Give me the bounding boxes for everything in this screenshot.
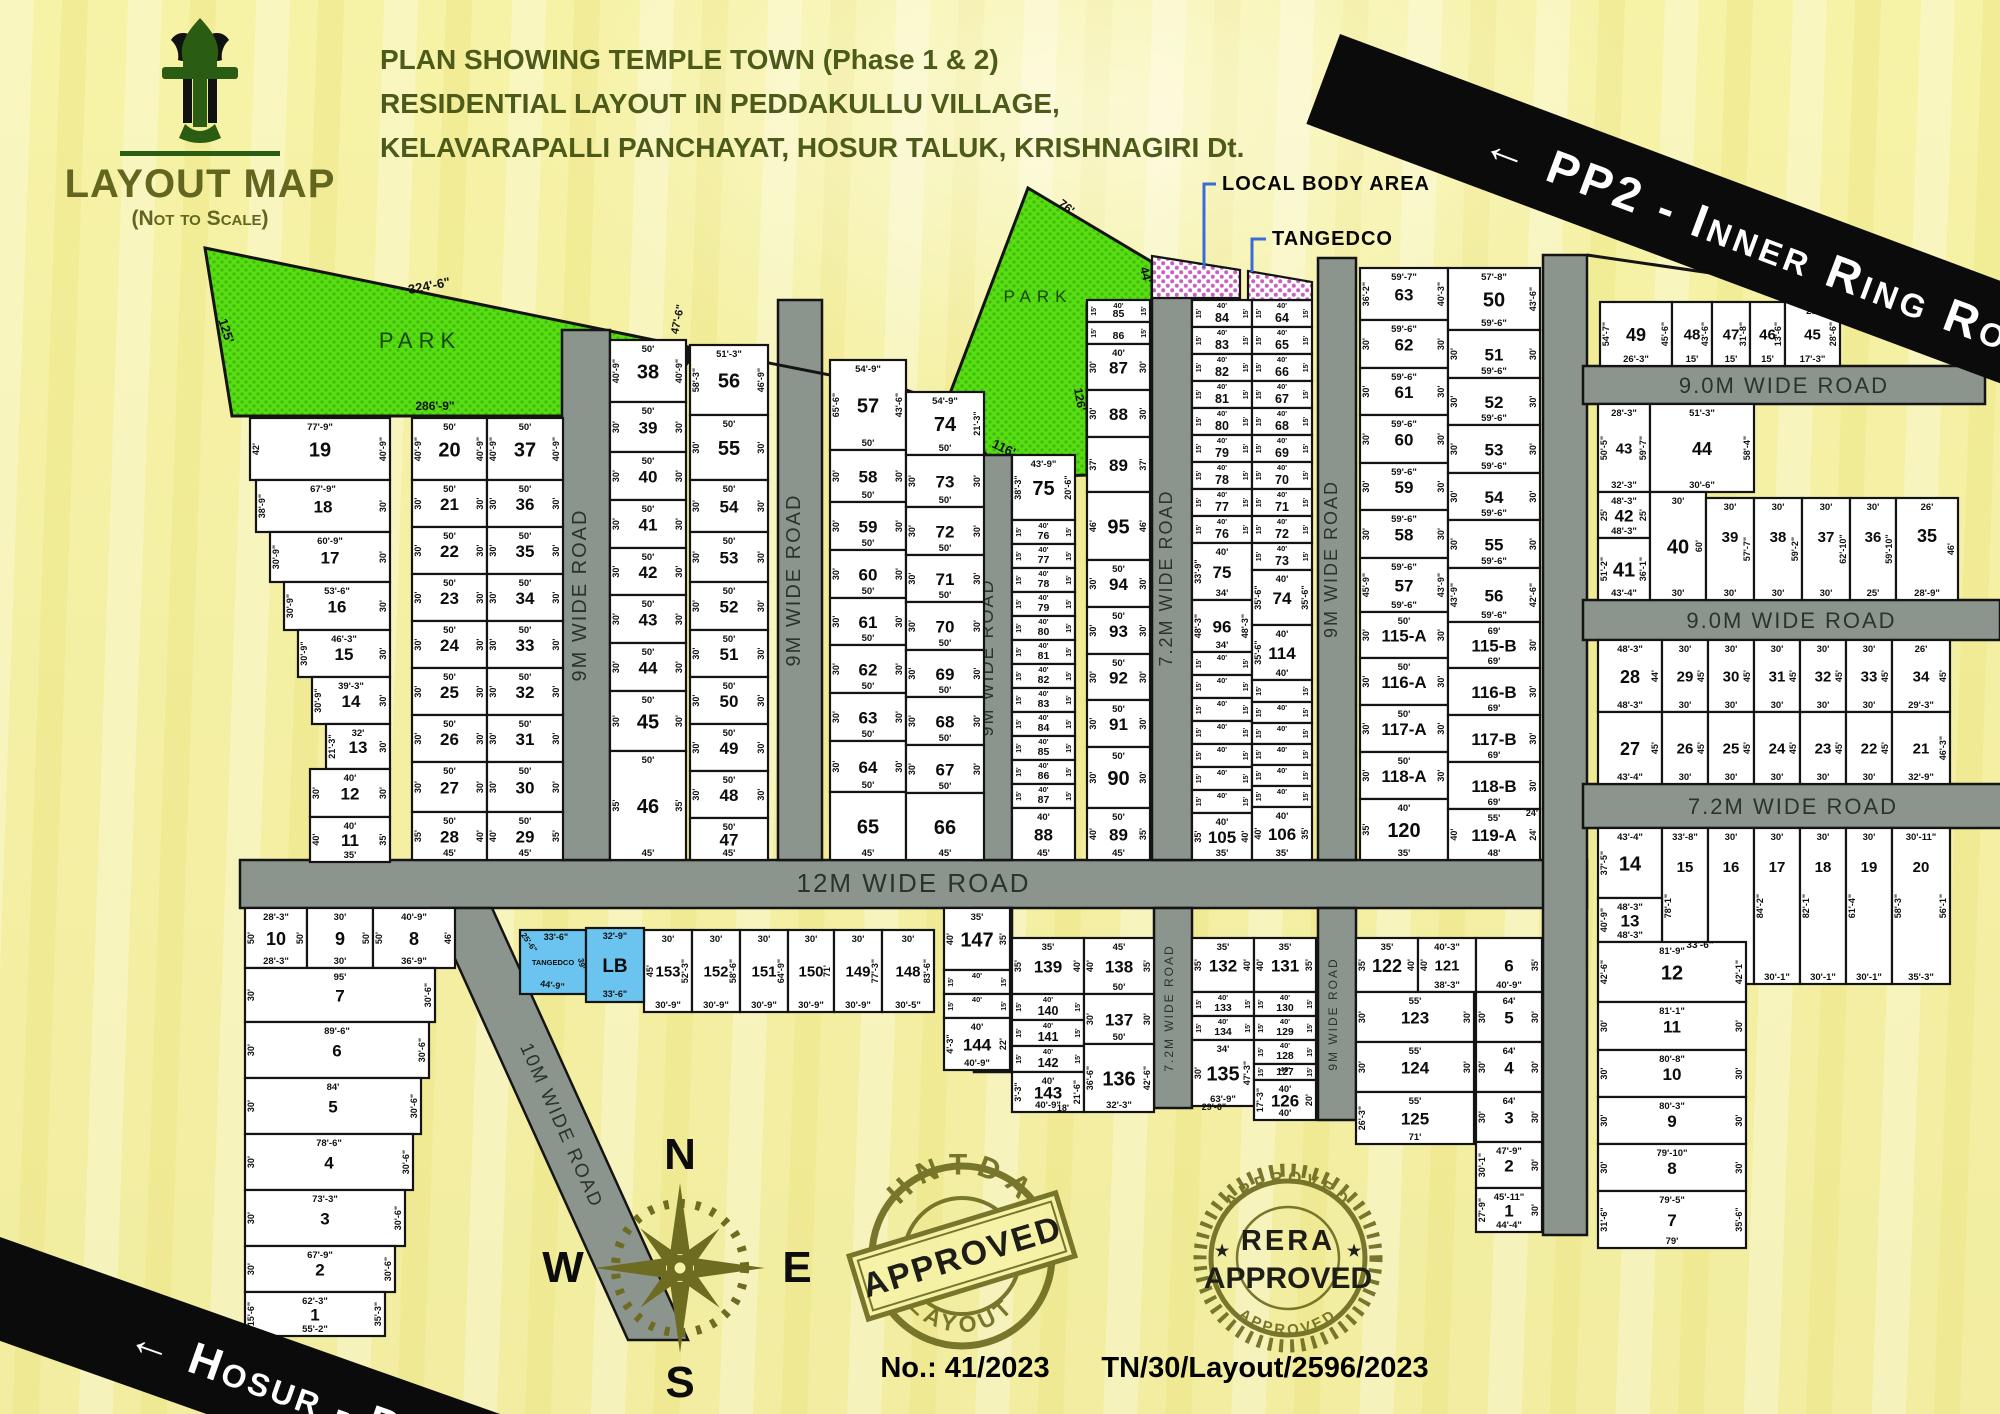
svg-text:38'-3": 38'-3" xyxy=(1434,980,1460,991)
svg-text:40': 40' xyxy=(1277,517,1287,526)
svg-text:15': 15' xyxy=(1243,796,1250,806)
svg-text:12: 12 xyxy=(1661,963,1683,985)
svg-text:45': 45' xyxy=(1834,670,1844,682)
svg-text:15': 15' xyxy=(1196,362,1203,372)
svg-text:30': 30' xyxy=(972,715,982,727)
plot-col-64-106-68: 40'15'15'68 xyxy=(1252,408,1312,435)
svg-text:35': 35' xyxy=(1279,942,1292,953)
svg-text:30': 30' xyxy=(1817,700,1830,711)
svg-text:30': 30' xyxy=(1436,385,1446,397)
svg-text:40': 40' xyxy=(1216,547,1229,558)
svg-text:15': 15' xyxy=(1196,443,1203,453)
svg-text:40': 40' xyxy=(945,933,955,945)
svg-text:37'-5": 37'-5" xyxy=(1599,851,1609,875)
svg-text:40'-9": 40'-9" xyxy=(413,437,423,461)
svg-text:36'-1": 36'-1" xyxy=(1638,557,1648,581)
svg-text:15': 15' xyxy=(1016,599,1023,609)
svg-text:79': 79' xyxy=(1666,1236,1679,1247)
svg-text:30': 30' xyxy=(1771,700,1784,711)
svg-text:59'-7": 59'-7" xyxy=(1638,436,1648,460)
svg-text:30': 30' xyxy=(551,591,561,603)
plot-col-147-144-147: 35'40'35'147 xyxy=(944,908,1010,970)
plot-row-15-20-20: 30'-11"35'-3"58'-3"56'-1"20 xyxy=(1892,828,1950,984)
svg-text:30': 30' xyxy=(1088,717,1098,729)
svg-text:64'-9": 64'-9" xyxy=(776,959,786,983)
svg-text:15': 15' xyxy=(1243,308,1250,318)
plot-col-84-105-96: 34'48'-3"48'-3"96 xyxy=(1192,600,1252,652)
svg-text:30': 30' xyxy=(1449,348,1459,360)
plot-block-row-49-45: 26'-3"54'-7"45'-6"4915'43'-6"4815'31'-8"… xyxy=(1600,302,1840,366)
svg-text:55': 55' xyxy=(1409,1046,1422,1057)
approval-number: No.: 41/2023 xyxy=(840,1352,1090,1385)
svg-text:24: 24 xyxy=(1769,741,1786,758)
svg-text:15': 15' xyxy=(1016,1002,1023,1012)
svg-text:43'-6": 43'-6" xyxy=(1700,322,1710,346)
svg-text:87: 87 xyxy=(1038,794,1050,806)
svg-text:130: 130 xyxy=(1276,1002,1294,1014)
plot-blk-40-40: 30'30'60'40 xyxy=(1650,492,1706,600)
svg-text:30': 30' xyxy=(1528,395,1538,407)
svg-text:65: 65 xyxy=(1275,338,1289,352)
svg-text:75: 75 xyxy=(1213,563,1232,582)
svg-text:30: 30 xyxy=(1723,669,1740,686)
svg-text:15': 15' xyxy=(1196,308,1203,318)
plot-col-50-119A-51: 59'-6"30'30'51 xyxy=(1448,330,1540,378)
plot-col-12-7-12: 81'-9"42'-6"42'-1"12 xyxy=(1598,942,1746,1002)
svg-text:30': 30' xyxy=(1679,772,1692,783)
svg-text:30'-9": 30'-9" xyxy=(703,1000,729,1011)
svg-text:106: 106 xyxy=(1268,825,1296,844)
plot-col-29-37-33: 50'30'30'33 xyxy=(487,621,563,668)
svg-text:127: 127 xyxy=(1276,1066,1294,1078)
svg-text:40': 40' xyxy=(1217,653,1227,662)
svg-text:30': 30' xyxy=(894,520,904,532)
svg-text:40': 40' xyxy=(1276,811,1289,822)
svg-text:30': 30' xyxy=(756,741,766,753)
svg-text:42'-6": 42'-6" xyxy=(1528,583,1538,607)
svg-text:30': 30' xyxy=(1361,629,1371,641)
plot-block-col-131-126: 35'40'35'13140'15'15'13040'15'15'12940'1… xyxy=(1254,938,1316,1120)
svg-text:30': 30' xyxy=(1530,1111,1540,1123)
plot-block-row-39-35: 30'30'57'-7"3930'30'59'-2"3830'30'62'-10… xyxy=(1706,498,1958,600)
svg-text:20'-6": 20'-6" xyxy=(1063,475,1073,499)
plot-row-153-148-148: 30'30'-5"83'-6"148 xyxy=(882,930,934,1012)
svg-text:30': 30' xyxy=(1771,832,1784,843)
plot-col-63-120-60: 59'-6"30'30'60 xyxy=(1360,415,1448,463)
svg-text:45': 45' xyxy=(723,848,736,859)
blue-plot-LB: LB32'-9"33'-6" xyxy=(586,928,644,1002)
svg-text:58'-3": 58'-3" xyxy=(1893,894,1903,918)
svg-text:22: 22 xyxy=(1861,741,1878,758)
svg-text:38: 38 xyxy=(1770,529,1787,546)
svg-text:50': 50' xyxy=(443,816,456,827)
plot-col-47-56-49: 50'30'30'49 xyxy=(690,724,768,771)
svg-text:65: 65 xyxy=(857,817,879,839)
svg-text:86: 86 xyxy=(1113,330,1125,342)
plot-col-57-65-62: 50'30'30'62 xyxy=(830,645,906,693)
svg-text:34': 34' xyxy=(1217,1044,1230,1055)
plot-col-63-120-63: 59'-7"36'-2"40'-3"63 xyxy=(1360,268,1448,320)
svg-text:53: 53 xyxy=(720,548,739,567)
svg-text:15': 15' xyxy=(1307,1023,1314,1033)
svg-text:15': 15' xyxy=(1016,695,1023,705)
plot-col-11-19-19: 77'-9"42'40'-9"19 xyxy=(250,418,390,480)
svg-text:50': 50' xyxy=(1113,1032,1126,1043)
svg-text:15': 15' xyxy=(1016,527,1023,537)
svg-text:47: 47 xyxy=(1723,327,1740,344)
plot-col-84-105-76: 40'15'15'76 xyxy=(1192,516,1252,543)
svg-text:30': 30' xyxy=(413,591,423,603)
svg-text:45': 45' xyxy=(1880,742,1890,754)
road: 7.2M WIDE ROAD xyxy=(1152,296,1192,860)
svg-text:39'-3": 39'-3" xyxy=(338,681,364,692)
svg-text:69': 69' xyxy=(1488,656,1501,667)
plot-strip-75-88-81: 40'15'15'81 xyxy=(1012,640,1075,664)
plot-col-29-37-32: 50'30'30'32 xyxy=(487,668,563,715)
plot-col-64-106-114: 40'40'35'-6"114 xyxy=(1252,625,1312,680)
svg-text:50': 50' xyxy=(862,586,875,597)
svg-text:49: 49 xyxy=(720,739,739,758)
svg-text:50': 50' xyxy=(862,490,875,501)
plot-col-64-106-64: 40'15'15'64 xyxy=(1252,300,1312,327)
svg-text:15': 15' xyxy=(1256,728,1263,738)
svg-text:32'-9": 32'-9" xyxy=(603,931,627,941)
svg-text:27'-9": 27'-9" xyxy=(1477,1198,1487,1222)
svg-text:35'-6": 35'-6" xyxy=(1734,1207,1744,1231)
svg-text:7.2M WIDE ROAD: 7.2M WIDE ROAD xyxy=(1688,794,1898,819)
plot-col-131-126-128: 40'15'15'128 xyxy=(1254,1040,1316,1064)
svg-text:40': 40' xyxy=(1038,689,1048,698)
svg-text:30': 30' xyxy=(691,647,701,659)
plot-block-col-47-56: 51'-3"58'-3"46'-9"5650'30'30'5550'30'30'… xyxy=(690,345,768,860)
svg-text:40': 40' xyxy=(1038,761,1048,770)
svg-text:50': 50' xyxy=(1112,611,1125,622)
plot-row-27-21-24: 30'45'24 xyxy=(1754,712,1800,784)
svg-text:15': 15' xyxy=(1243,750,1250,760)
svg-text:TANGEDCO: TANGEDCO xyxy=(1272,228,1393,250)
svg-text:45': 45' xyxy=(1742,670,1752,682)
svg-text:30': 30' xyxy=(1725,772,1738,783)
svg-text:30': 30' xyxy=(902,934,915,945)
svg-text:44: 44 xyxy=(639,658,658,677)
plot-col-64-106-71: 40'15'15'71 xyxy=(1252,489,1312,516)
title-line-3: KELAVARAPALLI PANCHAYAT, HOSUR TALUK, KR… xyxy=(380,126,1244,170)
svg-text:50': 50' xyxy=(939,590,952,601)
svg-text:122: 122 xyxy=(1372,956,1402,976)
svg-text:50': 50' xyxy=(862,780,875,791)
svg-text:40': 40' xyxy=(1217,745,1227,754)
svg-text:50': 50' xyxy=(519,766,532,777)
svg-text:33'-6": 33'-6" xyxy=(544,932,568,942)
svg-text:15': 15' xyxy=(1243,389,1250,399)
svg-text:69': 69' xyxy=(1488,797,1501,808)
svg-text:30': 30' xyxy=(907,715,917,727)
svg-text:40': 40' xyxy=(1277,382,1287,391)
svg-text:30': 30' xyxy=(1817,644,1830,655)
svg-text:50': 50' xyxy=(1398,709,1411,720)
plot-col-29-37-36: 50'30'30'36 xyxy=(487,480,563,527)
svg-text:30': 30' xyxy=(1357,1061,1367,1073)
svg-text:153: 153 xyxy=(655,964,680,981)
svg-text:30': 30' xyxy=(1771,644,1784,655)
svg-text:57: 57 xyxy=(1395,576,1414,595)
svg-text:30': 30' xyxy=(1138,717,1148,729)
svg-text:40'-9": 40'-9" xyxy=(611,359,621,383)
svg-text:30': 30' xyxy=(1462,1061,1472,1073)
plot-col-85-95-88: 30'30'88 xyxy=(1087,390,1150,437)
svg-text:52'-3": 52'-3" xyxy=(680,959,690,983)
svg-text:81'-1": 81'-1" xyxy=(1659,1006,1685,1017)
svg-text:30': 30' xyxy=(246,1212,256,1224)
svg-text:45': 45' xyxy=(1696,742,1706,754)
svg-text:15': 15' xyxy=(1303,728,1310,738)
svg-text:PARK: PARK xyxy=(1003,287,1072,306)
plot-block-col-38-46: 50'40'-9"40'-9"3850'30'30'3950'30'30'405… xyxy=(610,340,686,860)
svg-text:30': 30' xyxy=(1436,528,1446,540)
svg-text:30': 30' xyxy=(756,500,766,512)
plot-col-132-135-135: 34'63'-9"30'47'-3"135 xyxy=(1192,1040,1254,1106)
plot-col-20-28-23: 50'30'30'23 xyxy=(412,574,487,621)
svg-text:30': 30' xyxy=(378,500,388,512)
svg-text:30': 30' xyxy=(1734,1114,1744,1126)
plot-col-66-74-70: 50'30'30'70 xyxy=(906,602,984,650)
plot-col-38-46-46: 50'45'35'35'46 xyxy=(610,751,686,860)
svg-text:30': 30' xyxy=(1088,624,1098,636)
svg-text:59'-6": 59'-6" xyxy=(1481,556,1507,567)
svg-text:50': 50' xyxy=(723,775,736,786)
svg-text:15': 15' xyxy=(1016,1054,1023,1064)
svg-text:30': 30' xyxy=(1138,407,1148,419)
svg-text:29'-6": 29'-6" xyxy=(1202,1102,1226,1112)
svg-text:30': 30' xyxy=(1530,1204,1540,1216)
plot-cell: 40'15'15' xyxy=(1252,744,1312,765)
svg-text:21: 21 xyxy=(440,495,459,514)
plot-col-29-37-35: 50'30'30'35 xyxy=(487,527,563,574)
svg-text:25': 25' xyxy=(1638,509,1648,521)
svg-text:142: 142 xyxy=(1038,1056,1059,1070)
logo-subtitle: (Not to Scale) xyxy=(60,207,340,231)
svg-text:40': 40' xyxy=(1217,355,1227,364)
svg-text:131: 131 xyxy=(1271,956,1299,975)
svg-text:15': 15' xyxy=(1141,328,1148,338)
svg-text:30': 30' xyxy=(756,788,766,800)
plot-block-col-11-19: 77'-9"42'40'-9"1967'-9"38'-9"30'1860'-9"… xyxy=(250,418,390,862)
svg-text:50': 50' xyxy=(246,932,256,944)
svg-text:84'-2": 84'-2" xyxy=(1755,894,1765,918)
svg-text:15': 15' xyxy=(1243,335,1250,345)
svg-text:60: 60 xyxy=(859,565,878,584)
svg-text:15: 15 xyxy=(1677,859,1694,876)
svg-text:64': 64' xyxy=(1503,1046,1516,1057)
plot-col-38-46-42: 50'30'30'42 xyxy=(610,548,686,595)
svg-text:53'-6": 53'-6" xyxy=(324,586,350,597)
svg-text:15': 15' xyxy=(1243,704,1250,714)
svg-text:35': 35' xyxy=(1193,830,1203,842)
svg-text:40': 40' xyxy=(971,1022,984,1033)
svg-text:76: 76 xyxy=(1215,527,1229,541)
plot-cell: 40'15'15' xyxy=(1192,790,1252,813)
svg-text:30': 30' xyxy=(710,934,723,945)
svg-text:N: N xyxy=(664,1130,696,1179)
svg-text:47'-3": 47'-3" xyxy=(1242,1061,1252,1085)
plot-row-49-45-49: 26'-3"54'-7"45'-6"49 xyxy=(1600,302,1672,366)
svg-text:E: E xyxy=(782,1243,811,1292)
svg-text:40': 40' xyxy=(1280,1041,1290,1050)
plot-block-col-139-143: 35'35'40'13940'15'15'14040'15'15'14140'1… xyxy=(1012,938,1084,1112)
svg-text:15': 15' xyxy=(1016,671,1023,681)
svg-text:30': 30' xyxy=(1817,772,1830,783)
svg-text:44: 44 xyxy=(1692,439,1712,459)
svg-text:43'-4": 43'-4" xyxy=(1617,832,1643,843)
svg-text:17: 17 xyxy=(1769,859,1786,876)
svg-text:14: 14 xyxy=(1619,854,1642,876)
plot-cell: 40'15'15' xyxy=(1252,702,1312,723)
svg-text:30': 30' xyxy=(1477,1111,1487,1123)
svg-text:35': 35' xyxy=(1216,848,1229,859)
svg-text:286'-9": 286'-9" xyxy=(415,399,454,413)
svg-text:30': 30' xyxy=(378,647,388,659)
hatched-area xyxy=(1152,256,1240,298)
svg-text:30': 30' xyxy=(475,591,485,603)
svg-text:15': 15' xyxy=(1307,1047,1314,1057)
svg-text:15': 15' xyxy=(1016,575,1023,585)
svg-text:35'-3": 35'-3" xyxy=(1908,972,1934,983)
svg-text:67'-9": 67'-9" xyxy=(307,1250,333,1261)
svg-text:50': 50' xyxy=(939,781,952,792)
svg-text:40': 40' xyxy=(1043,1047,1053,1056)
svg-text:40': 40' xyxy=(1072,960,1082,972)
svg-text:15': 15' xyxy=(1303,308,1310,318)
svg-text:66: 66 xyxy=(934,817,956,839)
svg-text:46': 46' xyxy=(1138,520,1148,532)
svg-text:30': 30' xyxy=(475,732,485,744)
svg-text:30': 30' xyxy=(413,497,423,509)
svg-text:30': 30' xyxy=(1436,629,1446,641)
svg-text:13: 13 xyxy=(1621,911,1640,930)
svg-text:30': 30' xyxy=(311,787,321,799)
plot-block-col-147-144: 35'40'35'14740'15'15'40'15'15'40'40'-9"4… xyxy=(944,908,1010,1070)
svg-text:50': 50' xyxy=(862,633,875,644)
svg-text:21'-6": 21'-6" xyxy=(1072,1080,1082,1104)
plot-cell: 40'15'15' xyxy=(1252,786,1312,807)
svg-text:5: 5 xyxy=(328,1097,337,1116)
svg-text:40': 40' xyxy=(1043,995,1053,1004)
svg-text:35': 35' xyxy=(998,933,1008,945)
svg-text:88: 88 xyxy=(1034,825,1053,844)
svg-text:50': 50' xyxy=(295,932,305,944)
svg-text:6: 6 xyxy=(332,1041,341,1060)
svg-text:30': 30' xyxy=(378,600,388,612)
svg-text:59'-6": 59'-6" xyxy=(1481,413,1507,424)
svg-text:30': 30' xyxy=(756,551,766,563)
plot-col-20-28-25: 50'30'30'25 xyxy=(412,668,487,715)
svg-text:15': 15' xyxy=(1245,1023,1252,1033)
svg-text:25: 25 xyxy=(440,683,459,702)
svg-text:128: 128 xyxy=(1276,1050,1294,1062)
svg-text:30': 30' xyxy=(1436,722,1446,734)
svg-text:30'-9": 30'-9" xyxy=(313,688,323,712)
svg-text:28'-6": 28'-6" xyxy=(1828,322,1838,346)
plot-col-50-119A-117-B: 69'30'117-B xyxy=(1448,715,1540,762)
svg-text:50': 50' xyxy=(642,344,655,355)
svg-text:79: 79 xyxy=(1038,602,1050,614)
svg-text:30': 30' xyxy=(1530,1061,1540,1073)
svg-text:74: 74 xyxy=(934,414,957,436)
plot-cell: 15'15' xyxy=(1252,680,1312,702)
svg-text:8: 8 xyxy=(409,929,419,949)
svg-text:50': 50' xyxy=(642,504,655,515)
svg-text:23: 23 xyxy=(440,589,459,608)
svg-text:51: 51 xyxy=(1485,345,1504,364)
svg-text:40': 40' xyxy=(1253,827,1263,839)
svg-text:15': 15' xyxy=(1196,524,1203,534)
plot-col-20-28-26: 50'30'30'26 xyxy=(412,715,487,762)
svg-text:50': 50' xyxy=(443,531,456,542)
svg-text:PARK: PARK xyxy=(379,328,461,353)
svg-text:7.2M WIDE ROAD: 7.2M WIDE ROAD xyxy=(1162,944,1176,1071)
svg-text:78: 78 xyxy=(1038,578,1050,590)
plot-blk-14-14: 43'-4"37'-5"14 xyxy=(1598,828,1662,898)
plot-col-7-1-1: 62'-3"55'-2"15'-6"35'-3"1 xyxy=(245,1292,385,1336)
svg-text:30': 30' xyxy=(1138,577,1148,589)
svg-text:50': 50' xyxy=(939,443,952,454)
svg-text:40'-9": 40'-9" xyxy=(401,912,427,923)
plot-col-84-105-77: 40'15'15'77 xyxy=(1192,489,1252,516)
svg-text:30': 30' xyxy=(907,572,917,584)
svg-text:14: 14 xyxy=(342,692,361,711)
svg-text:30': 30' xyxy=(378,787,388,799)
svg-text:50': 50' xyxy=(1112,564,1125,575)
svg-text:40'-9": 40'-9" xyxy=(475,437,485,461)
plot-col-64-106-73: 40'15'15'73 xyxy=(1252,543,1312,570)
svg-text:50': 50' xyxy=(642,647,655,658)
svg-text:29: 29 xyxy=(1677,669,1694,686)
svg-text:69: 69 xyxy=(1275,446,1289,460)
svg-text:17'-3": 17'-3" xyxy=(1800,354,1826,365)
svg-text:30': 30' xyxy=(475,638,485,650)
svg-text:30': 30' xyxy=(611,565,621,577)
svg-text:40': 40' xyxy=(1449,828,1459,840)
svg-text:15': 15' xyxy=(1256,686,1263,696)
svg-text:50': 50' xyxy=(723,681,736,692)
plot-block-col-42-41: 48'-3"48'-3"25'25'4243'-4"51'-2"36'-1"41 xyxy=(1598,492,1650,600)
svg-text:★: ★ xyxy=(1215,1243,1230,1260)
svg-text:30'-6": 30'-6" xyxy=(383,1257,393,1281)
svg-text:15': 15' xyxy=(1256,524,1263,534)
logo-underline xyxy=(120,151,280,156)
svg-text:15': 15' xyxy=(1001,1001,1008,1011)
svg-text:9.0M WIDE ROAD: 9.0M WIDE ROAD xyxy=(1686,608,1896,633)
svg-text:40': 40' xyxy=(1277,328,1287,337)
svg-text:15': 15' xyxy=(1196,727,1203,737)
plot-col-84-105-84: 40'15'15'84 xyxy=(1192,300,1252,327)
plot-col-6-1-4: 64'30'30'4 xyxy=(1476,1042,1542,1092)
svg-text:56: 56 xyxy=(1485,586,1504,605)
svg-text:118-B: 118-B xyxy=(1471,777,1516,796)
svg-text:50': 50' xyxy=(519,672,532,683)
svg-text:43'-4": 43'-4" xyxy=(1611,588,1637,599)
svg-text:30': 30' xyxy=(1528,732,1538,744)
svg-text:50': 50' xyxy=(519,422,532,433)
svg-text:40': 40' xyxy=(1038,521,1048,530)
svg-text:17: 17 xyxy=(321,548,340,567)
svg-text:54'-9": 54'-9" xyxy=(932,396,958,407)
svg-text:129: 129 xyxy=(1276,1026,1294,1038)
svg-text:50': 50' xyxy=(443,578,456,589)
svg-text:50': 50' xyxy=(1398,662,1411,673)
svg-text:50': 50' xyxy=(939,733,952,744)
plot-col-139-143-139: 35'35'40'139 xyxy=(1012,938,1084,994)
